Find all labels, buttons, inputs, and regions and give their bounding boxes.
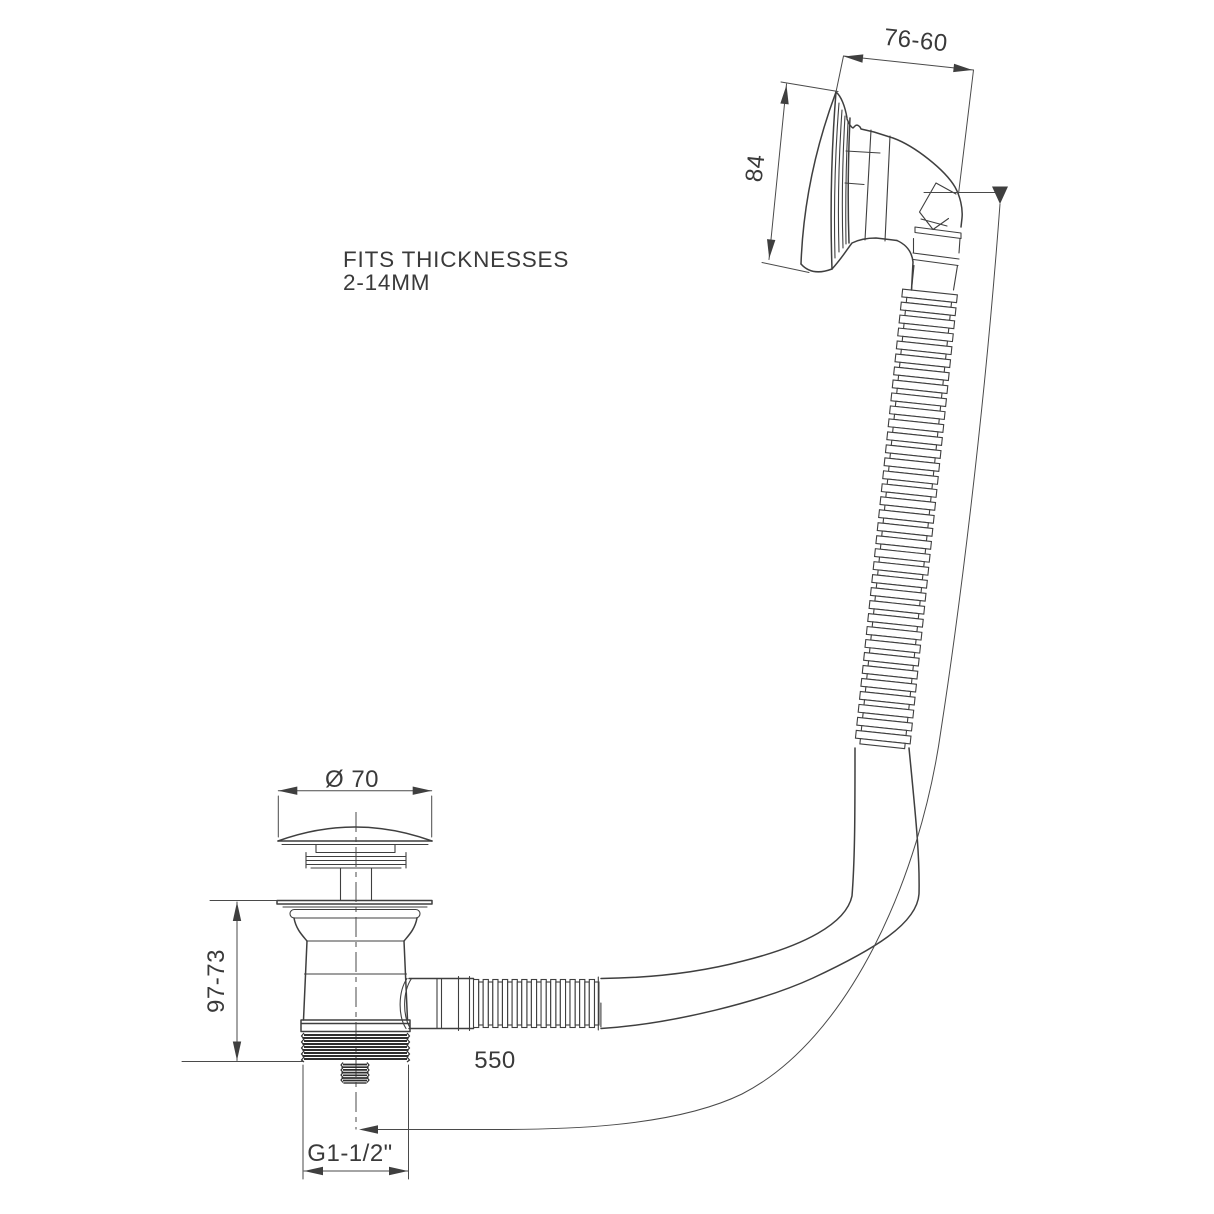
waste-assembly (277, 812, 474, 1130)
bath-waste-overflow-drawing: Ø 70 97-73 G1-1/2" 550 76-60 8 (0, 0, 1214, 1214)
overflow-dome (801, 92, 848, 272)
technical-drawing-page: Ø 70 97-73 G1-1/2" 550 76-60 8 (0, 0, 1214, 1214)
flex-hose (474, 289, 958, 1030)
note-line2: 2-14MM (343, 270, 430, 295)
overflow-body (832, 92, 962, 290)
body-height-label: 97-73 (203, 949, 230, 1013)
waste-side-outlet (400, 977, 473, 1031)
hose-length-label: 550 (474, 1047, 516, 1074)
hose-corrugation-vertical (855, 289, 957, 749)
waste-body (277, 901, 432, 1084)
thread-size-label: G1-1/2" (307, 1140, 392, 1167)
overflow-depth-label: 76-60 (883, 24, 949, 58)
dim-overflow-diameter: 84 (741, 82, 838, 273)
waste-cap (278, 827, 432, 901)
dim-body-height: 97-73 (182, 901, 303, 1062)
overflow-diameter-label: 84 (741, 153, 771, 183)
hose-bend (601, 748, 919, 1029)
dim-overflow-depth: 76-60 (836, 24, 974, 194)
note: FITS THICKNESSES 2-14MM (343, 247, 569, 295)
note-line1: FITS THICKNESSES (343, 247, 569, 272)
overflow-assembly (801, 92, 962, 290)
cap-diameter-label: Ø 70 (325, 766, 379, 793)
hose-corrugation-horizontal (474, 980, 599, 1028)
